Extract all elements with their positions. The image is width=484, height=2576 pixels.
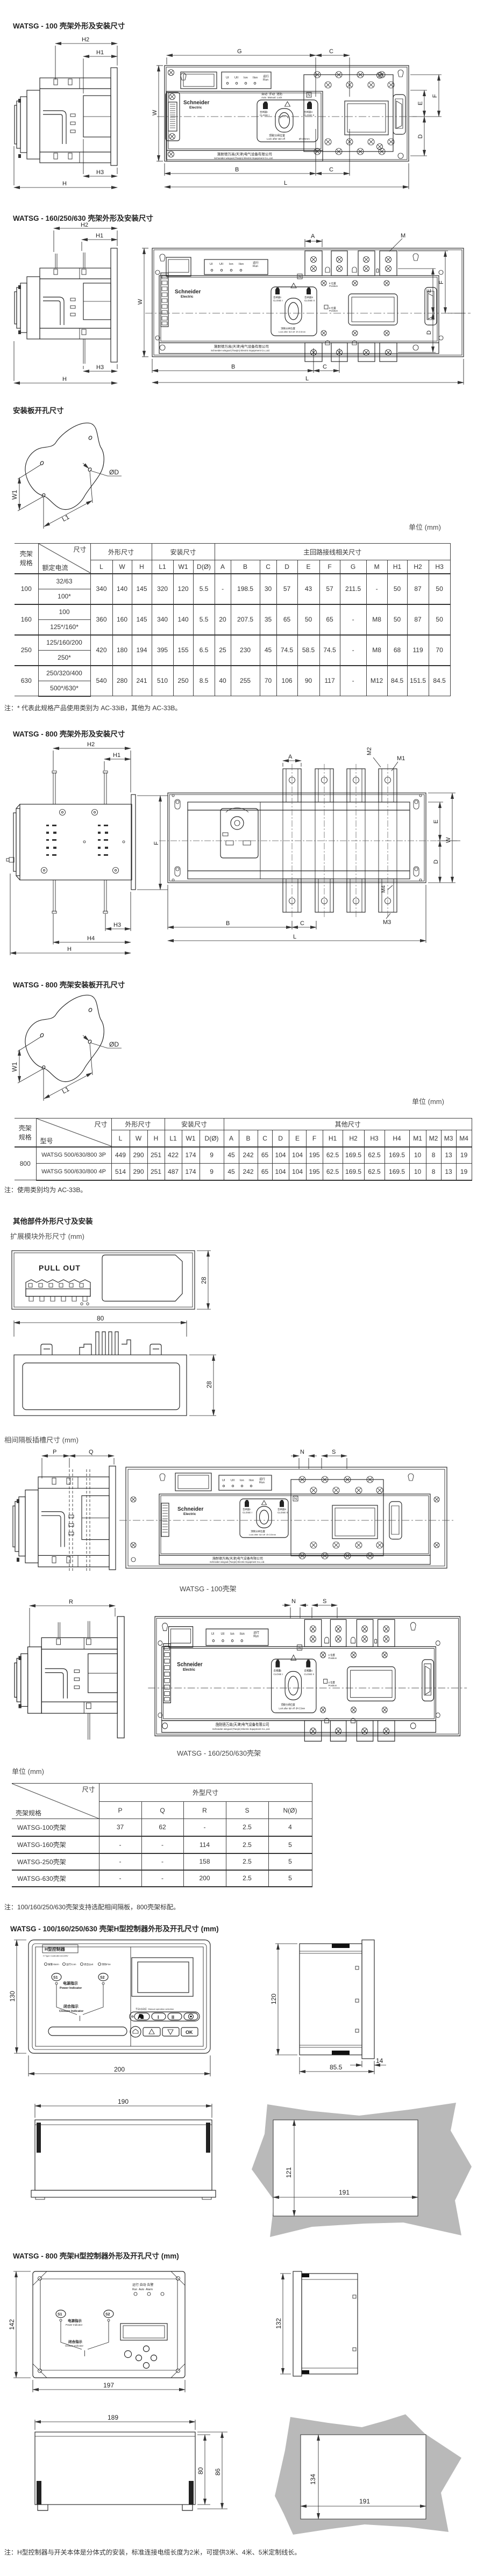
svg-text:Auto Manual Lock: Auto Manual Lock [261,96,282,99]
svg-text:85.5: 85.5 [330,2063,343,2071]
svg-text:H: H [62,181,67,187]
svg-text:合闸器I: 合闸器I [260,110,268,114]
svg-text:运行: 运行 [259,1477,266,1481]
svg-text:Schneider wingoal (Tianjin) El: Schneider wingoal (Tianjin) Electric Equ… [211,349,270,352]
svg-text:120: 120 [270,1994,277,2004]
svg-text:L1: L1 [61,513,71,523]
svg-text:R: R [69,1599,73,1605]
svg-text:H: H [67,946,72,953]
svg-text:闭合指示: 闭合指示 [68,2339,83,2344]
svg-text:H1: H1 [96,49,104,56]
svg-text:UII: UII [234,76,239,80]
svg-text:M1: M1 [397,755,405,762]
svg-text:自动 手动 消防: 自动 手动 消防 [261,92,283,96]
svg-text:Position: Position [329,285,338,287]
svg-text:E: E [426,289,432,293]
svg-text:132: 132 [275,2318,282,2329]
svg-text:UII: UII [219,263,224,266]
svg-text:顶致分闸位置: 顶致分闸位置 [281,327,295,330]
svg-text:F: F [153,841,160,845]
svg-text:Schneider: Schneider [183,100,209,106]
svg-text:S: S [323,1598,326,1605]
svg-text:顶致分闸位置: 顶致分闸位置 [269,134,285,138]
svg-text:W: W [445,837,452,843]
svg-text:PULL OUT: PULL OUT [39,1264,81,1272]
svg-text:B: B [231,364,235,370]
svg-text:Electric: Electric [183,1512,196,1516]
svg-text:Ion: Ion [229,263,233,266]
svg-text:P: P [53,1449,56,1455]
svg-text:D: D [426,330,432,335]
svg-text:CLOSE I: CLOSE I [243,1511,252,1514]
svg-text:合闸器II: 合闸器II [304,110,312,114]
svg-text:退出Quit: 退出Quit [84,1962,94,1966]
svg-text:L: L [293,934,296,940]
svg-text:M4: M4 [381,885,387,893]
svg-text:197: 197 [103,2382,114,2389]
svg-text:M3: M3 [383,919,391,926]
svg-text:CLOSE II: CLOSE II [304,114,314,117]
svg-text:86: 86 [214,2468,222,2476]
svg-text:运行Com: 运行Com [66,1962,76,1966]
svg-text:运行: 运行 [253,261,259,265]
svg-text:B: B [235,167,239,173]
svg-text:C: C [300,920,304,927]
svg-text:H4: H4 [87,935,95,942]
svg-text:OK: OK [186,2030,193,2035]
svg-text:Schneider: Schneider [175,289,201,295]
svg-text:闭合指示: 闭合指示 [63,2004,79,2009]
svg-text:H3: H3 [113,922,121,928]
svg-text:II: II [172,2015,174,2020]
svg-text:Schneider: Schneider [177,1506,203,1512]
svg-text:80: 80 [197,2467,204,2474]
svg-text:W: W [137,299,144,305]
svg-text:消防Fire: 消防Fire [102,1962,111,1966]
svg-text:E: E [417,102,424,105]
svg-text:CLOSE I: CLOSE I [273,299,283,302]
svg-text:189: 189 [108,2414,118,2421]
svg-text:N: N [300,1449,304,1455]
svg-text:142: 142 [8,2319,16,2330]
svg-text:H2: H2 [87,741,95,748]
svg-text:Lock after I&II off: Lock after I&II off [267,138,286,140]
svg-text:报警Alarm: 报警Alarm [48,1962,59,1966]
svg-text:W: W [152,110,158,116]
svg-text:Ø<3.5mm: Ø<3.5mm [299,138,310,140]
svg-text:Run: Run [263,78,268,82]
svg-text:D: D [433,860,439,864]
svg-text:Ion: Ion [240,1479,244,1482]
svg-text:H Type Controller AC220V: H Type Controller AC220V [43,1954,68,1957]
svg-text:H3: H3 [96,364,104,371]
svg-text:合闸器II: 合闸器II [304,295,313,299]
svg-text:UII: UII [231,1479,235,1482]
svg-text:F: F [432,94,438,98]
svg-text:N: N [294,1497,297,1501]
svg-text:UI: UI [226,76,229,80]
svg-text:134: 134 [309,2474,317,2485]
svg-text:C: C [323,364,327,370]
svg-text:A: A [311,233,315,240]
svg-text:ØD: ØD [109,468,119,476]
svg-text:28: 28 [200,1276,208,1284]
svg-text:CLOSE II: CLOSE II [277,1511,288,1514]
svg-text:Schneider wingoal (Tianjin) El: Schneider wingoal (Tianjin) Electric Equ… [210,1561,265,1563]
svg-text:手动/自动区 Manual operation selec: 手动/自动区 Manual operation selection [136,2007,174,2010]
svg-text:Electric: Electric [181,295,194,299]
svg-text:Electric: Electric [189,106,202,110]
svg-text:G: G [237,48,242,55]
svg-text:W1: W1 [11,490,18,500]
svg-text:Position: Position [329,309,338,312]
svg-text:顶致分闸位置: 顶致分闸位置 [251,1529,265,1533]
svg-text:CLOSE II: CLOSE II [304,299,315,302]
svg-text:CLOSE I: CLOSE I [260,114,269,117]
svg-text:I: I [158,2015,159,2020]
svg-text:H型控制器: H型控制器 [45,1946,66,1952]
svg-text:Run Auto Alarm: Run Auto Alarm [132,2288,153,2291]
svg-text:C: C [329,167,333,173]
svg-text:H: H [62,376,67,383]
svg-text:14: 14 [376,2057,383,2065]
svg-text:M: M [401,233,405,239]
svg-text:D: D [417,134,424,139]
svg-text:N: N [308,93,310,97]
svg-text:A: A [288,754,293,760]
svg-text:H3: H3 [96,169,104,176]
svg-text:施耐德万高(天津)电气设备有限公司: 施耐德万高(天津)电气设备有限公司 [212,1556,263,1561]
svg-text:121: 121 [285,2167,293,2178]
svg-text:Ion: Ion [244,76,248,80]
svg-text:F: F [438,280,445,284]
svg-text:合闸器II: 合闸器II [277,1507,286,1511]
svg-text:UI: UI [222,1479,225,1482]
svg-text:运行: 运行 [263,74,269,78]
svg-text:Run: Run [259,1481,265,1484]
svg-text:Schneider wingoal (Tianjin) El: Schneider wingoal (Tianjin) Electric Equ… [214,157,273,160]
svg-text:S2: S2 [100,1976,105,1980]
svg-text:S1: S1 [53,1976,58,1980]
svg-text:施耐德万高(天津)电气设备有限公司: 施耐德万高(天津)电气设备有限公司 [217,151,272,156]
svg-text:E: E [433,820,439,824]
svg-text:S1: S1 [58,2313,62,2317]
svg-text:191: 191 [339,2189,350,2196]
svg-text:L: L [284,180,287,186]
svg-text:B: B [226,920,230,927]
svg-text:200: 200 [114,2066,125,2073]
svg-text:191: 191 [359,2498,370,2505]
svg-text:L: L [305,376,309,382]
svg-text:C: C [329,48,333,55]
svg-text:IIon: IIon [239,263,244,266]
svg-text:80: 80 [97,1315,104,1322]
svg-text:Lock after I&II off Ø<3.5mm: Lock after I&II off Ø<3.5mm [249,1533,276,1536]
svg-text:Closure Indicator: Closure Indicator [59,2010,84,2013]
svg-text:Q: Q [89,1449,94,1455]
svg-text:190: 190 [118,2098,129,2105]
svg-text:S: S [332,1449,336,1455]
svg-text:运行 自动 告警: 运行 自动 告警 [132,2283,153,2287]
svg-text:合闸器I: 合闸器I [273,295,281,299]
svg-text:Power Indicator: Power Indicator [60,1987,82,1990]
svg-text:Closure Indicator: Closure Indicator [65,2344,84,2347]
svg-text:Power Indicator: Power Indicator [66,2324,83,2326]
svg-text:M2: M2 [366,747,373,755]
svg-text:Lock after I&II off Ø<3.5mm: Lock after I&II off Ø<3.5mm [279,330,306,333]
svg-text:H1: H1 [113,752,120,759]
svg-text:H2: H2 [82,37,89,43]
svg-text:电源指示: 电源指示 [63,1981,78,1986]
svg-text:28: 28 [205,1381,213,1388]
svg-text:S2: S2 [105,2313,110,2317]
svg-text:H2: H2 [81,222,88,228]
svg-text:N: N [291,1598,296,1605]
svg-text:130: 130 [9,1991,16,2002]
svg-text:H1: H1 [96,233,103,239]
svg-text:施耐德万高(天津)电气设备有限公司: 施耐德万高(天津)电气设备有限公司 [214,344,269,349]
svg-text:UI: UI [210,263,213,266]
svg-text:合闸器I: 合闸器I [243,1507,251,1511]
svg-text:电源指示: 电源指示 [68,2318,82,2323]
svg-text:Run: Run [253,265,258,268]
svg-text:IIon: IIon [249,1479,254,1482]
svg-text:IIon: IIon [253,76,258,80]
